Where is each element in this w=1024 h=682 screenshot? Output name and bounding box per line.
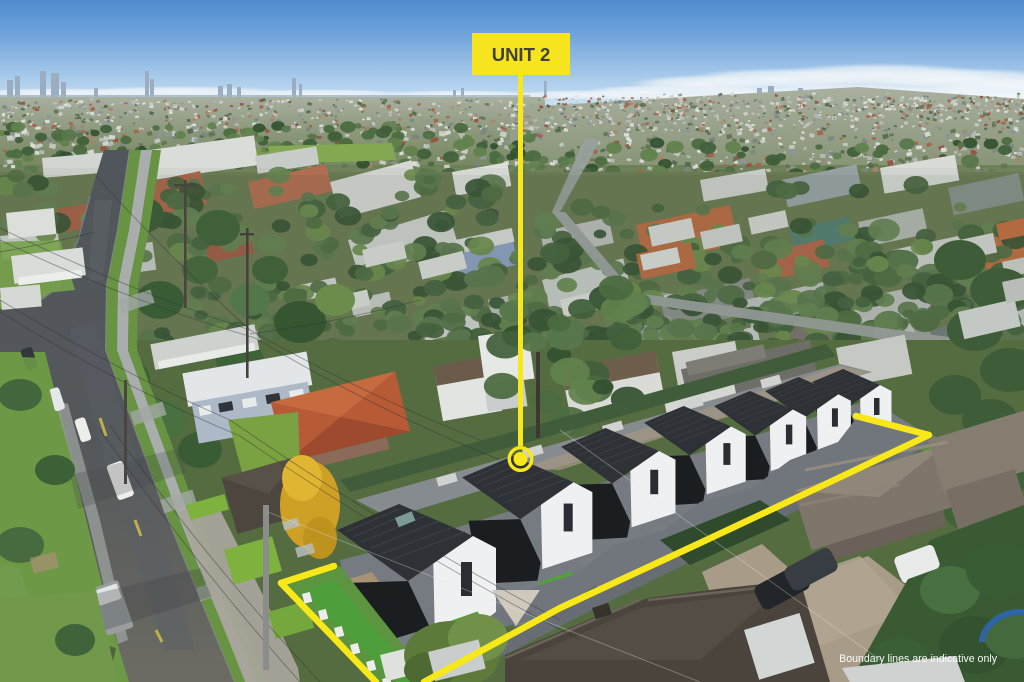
svg-text:UNIT 2: UNIT 2 (492, 44, 551, 65)
svg-text:Boundary lines are indicative: Boundary lines are indicative only (839, 653, 998, 665)
